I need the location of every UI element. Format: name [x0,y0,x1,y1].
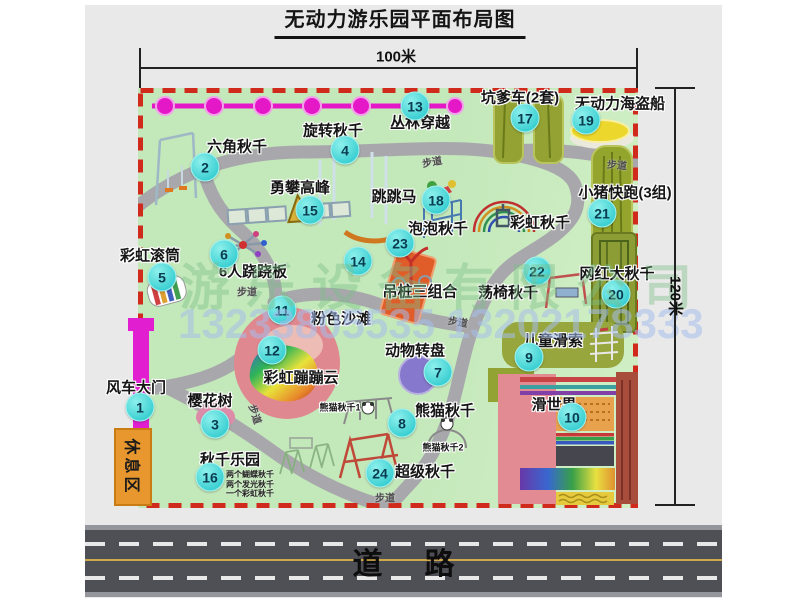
attraction-badge-24: 24 [366,459,395,488]
attraction-badge-13: 13 [401,92,430,121]
path-label-1: 步道 [606,156,627,173]
dimension-height-label: 120米 [666,276,687,316]
park-layout-map: 无动力游乐园平面布局图 100米 120米 [0,0,800,600]
attraction-badge-22: 22 [523,257,552,286]
attraction-label-15: 勇攀高峰 [270,177,330,198]
attraction-label-21: 小猪快跑(3组) [578,182,671,203]
attraction-label-8: 熊猫秋千 [415,400,475,421]
attraction-badge-20: 20 [602,280,631,309]
dimension-tick [655,504,695,506]
attraction-badge-8: 8 [388,409,417,438]
attraction-label-12: 彩虹蹦蹦云 [263,367,338,388]
attraction-badge-5: 5 [148,263,177,292]
attraction-badge-3: 3 [201,410,230,439]
attraction-badge-14: 14 [344,247,373,276]
attraction-badge-1: 1 [126,393,155,422]
attraction-badge-4: 4 [331,136,360,165]
extra-label-1: 熊猫秋千1 [319,401,360,414]
attraction-badge-7: 7 [424,358,453,387]
attraction-label-4: 旋转秋千 [303,120,363,141]
attraction-badge-18: 18 [422,186,451,215]
road: 道路 [85,525,722,597]
road-label: 道路 [85,530,722,592]
attraction-badge-16: 16 [196,463,225,492]
attraction-badge-15: 15 [296,196,325,225]
dimension-tick [636,48,638,88]
attraction-badge-23: 23 [386,229,415,258]
attraction-label-22: 荡椅秋千 [478,282,538,303]
attraction-label-18: 跳跳马 [371,186,416,207]
extra-label-2: 熊猫秋千2 [422,441,463,454]
attraction-badge-17: 17 [511,104,540,133]
attraction-badge-9: 9 [515,343,544,372]
attraction-badge-6: 6 [210,240,239,269]
attraction-label-3: 樱花树 [187,390,232,411]
rest-area: 休息区 [114,428,152,506]
path-label-5: 步道 [375,490,395,505]
attraction-badge-10: 10 [558,403,587,432]
attraction-badge-21: 21 [588,199,617,228]
dimension-line-top [140,67,637,69]
attraction-badge-12: 12 [258,336,287,365]
path-label-3: 步道 [447,312,469,330]
dimension-tick [655,87,695,89]
rest-area-label: 休息区 [121,438,145,495]
attraction-label-14: 吊桩三组合 [382,281,457,302]
dimension-width-label: 100米 [376,46,416,67]
attraction-badge-2: 2 [191,153,220,182]
attraction-label-2: 六角秋千 [207,136,267,157]
dimension-tick [139,48,141,88]
swing-park-note-2: 一个彩虹秋千 [226,488,274,499]
attraction-label-11: 粉色沙滩 [311,308,371,329]
attraction-badge-11: 11 [268,296,297,325]
attraction-label-5: 彩虹滚筒 [120,245,180,266]
extra-label-0: 彩虹秋千 [510,212,570,233]
attraction-label-23: 泡泡秋千 [408,218,468,239]
path-label-2: 步道 [237,284,257,299]
page-title: 无动力游乐园平面布局图 [275,3,526,39]
attraction-label-24: 超级秋千 [395,461,455,482]
attraction-badge-19: 19 [572,106,601,135]
